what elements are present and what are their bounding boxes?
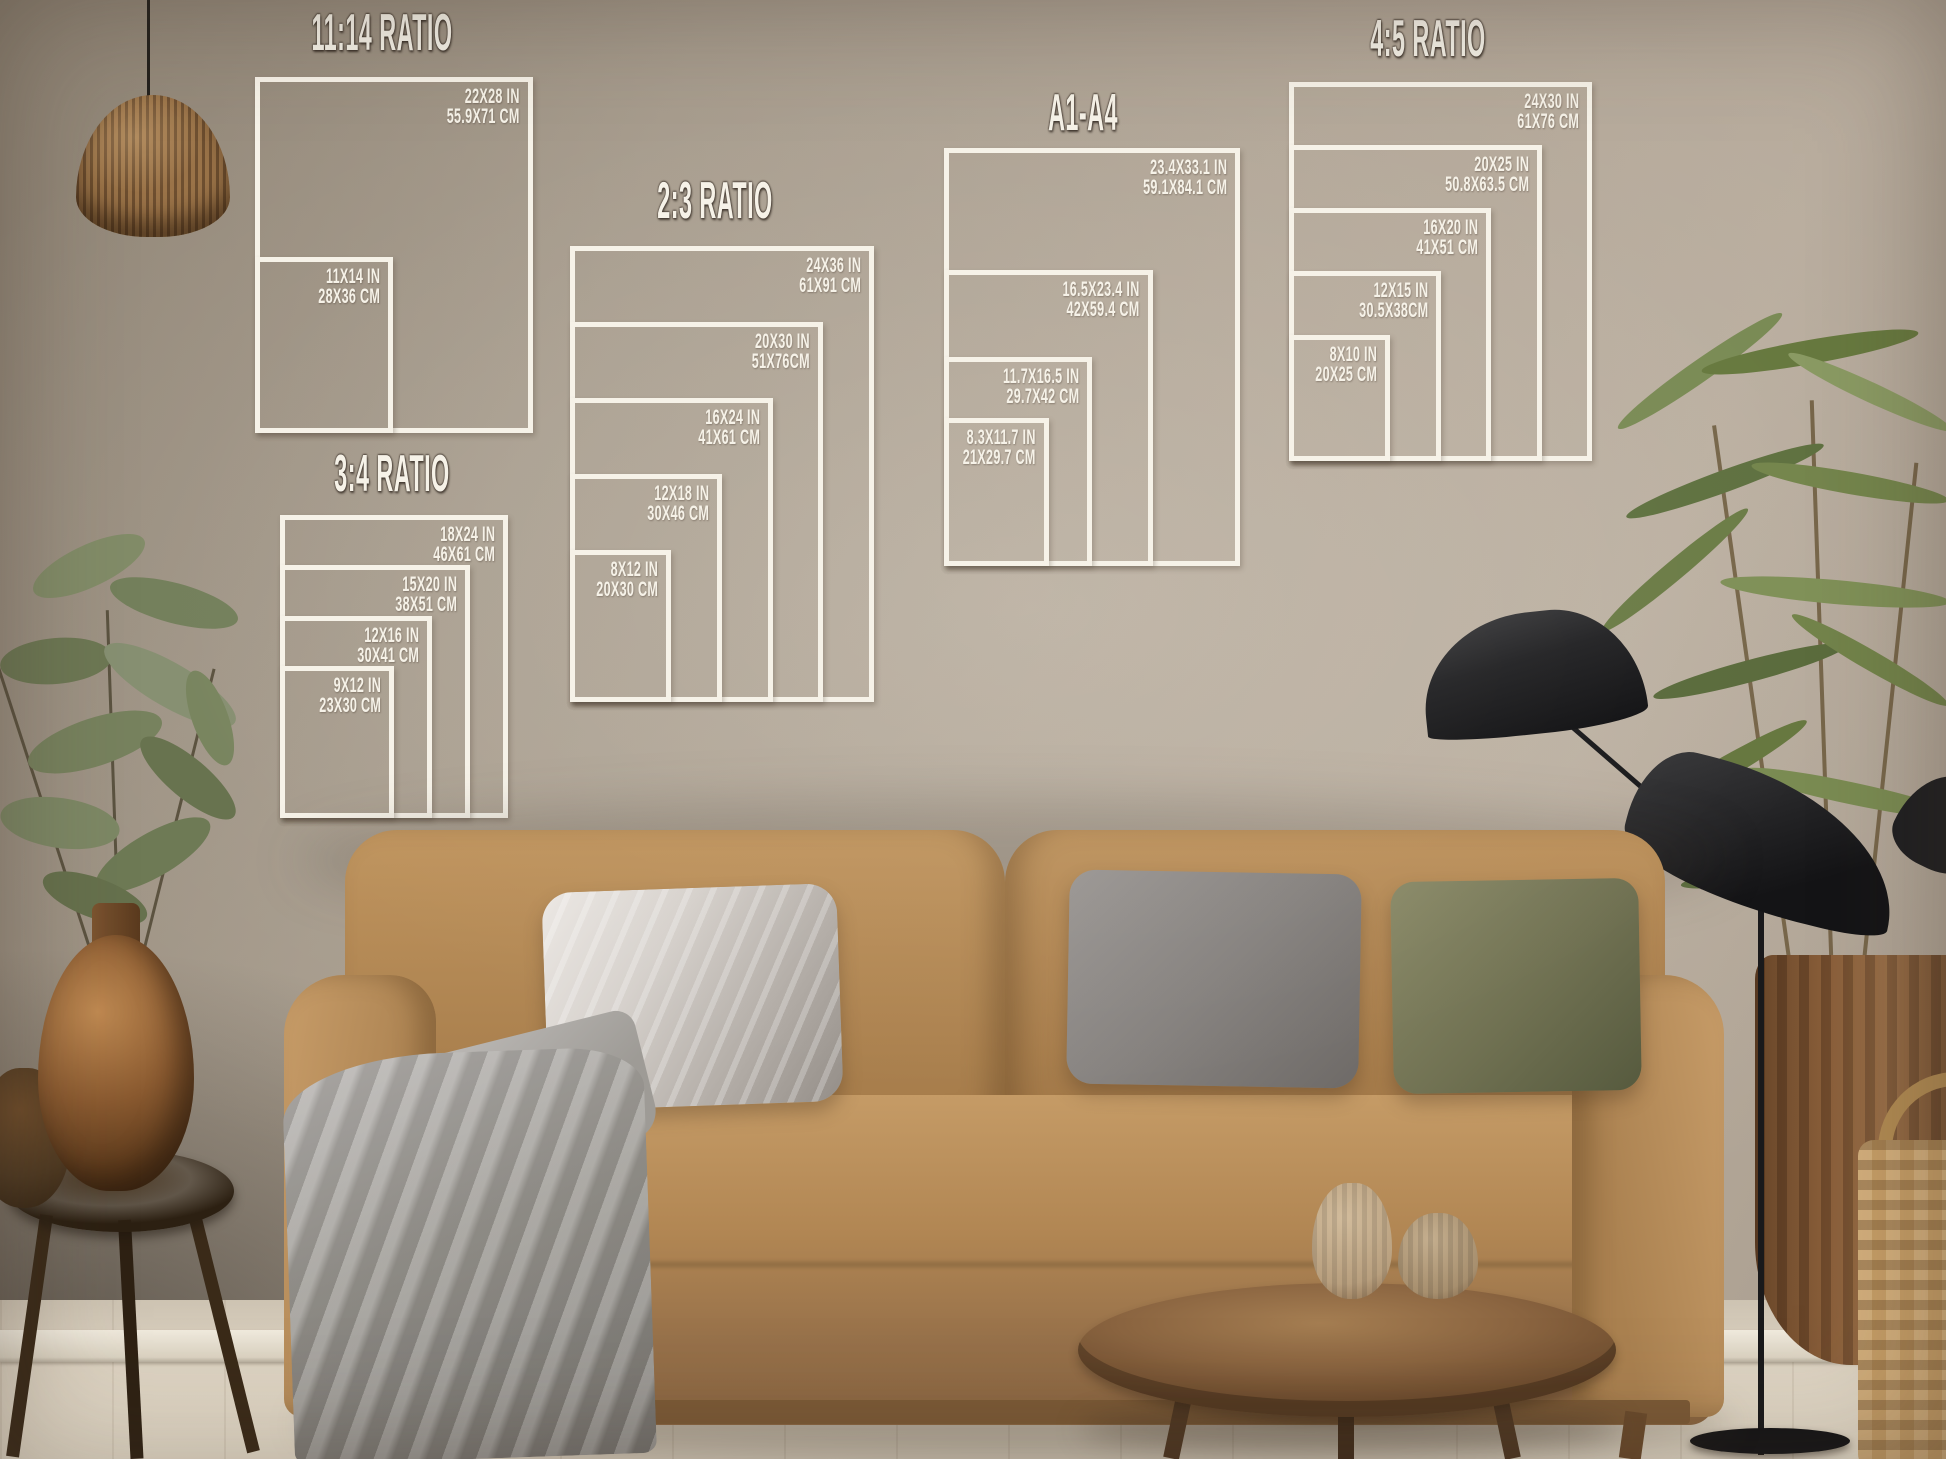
table-vase-tall	[1312, 1183, 1392, 1299]
coffee-table	[0, 0, 1946, 1459]
table-top	[1078, 1283, 1616, 1417]
living-room-poster-size-mockup: 11:14 RATIO 22X28 IN55.9X71 CM 11X14 IN2…	[0, 0, 1946, 1459]
table-vase-short	[1398, 1213, 1478, 1299]
